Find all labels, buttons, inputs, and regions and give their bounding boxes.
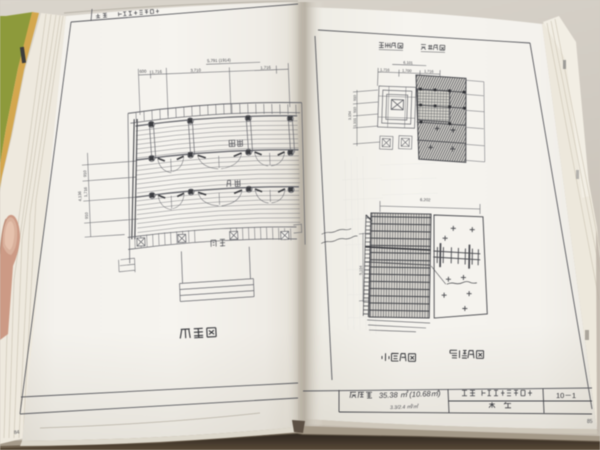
svg-text:1,716: 1,716 xyxy=(424,70,434,74)
svg-text:910: 910 xyxy=(84,211,89,219)
svg-text:910: 910 xyxy=(82,170,87,178)
svg-text:1,716: 1,716 xyxy=(83,186,88,197)
svg-text:3.3/2.4 ㎡/㎡: 3.3/2.4 ㎡/㎡ xyxy=(390,403,419,411)
svg-text:910: 910 xyxy=(353,107,357,113)
svg-text:910: 910 xyxy=(353,95,357,101)
svg-text:1,700: 1,700 xyxy=(402,69,412,73)
svg-text:1,716: 1,716 xyxy=(151,69,162,74)
svg-text:1,716: 1,716 xyxy=(380,68,390,72)
svg-text:5,791 (1914): 5,791 (1914) xyxy=(207,57,232,63)
svg-text:600: 600 xyxy=(139,69,147,74)
svg-text:4,136: 4,136 xyxy=(77,190,82,201)
svg-text:1,716: 1,716 xyxy=(260,65,271,70)
svg-text:5,104: 5,104 xyxy=(359,265,363,275)
svg-text:10－1: 10－1 xyxy=(556,391,576,400)
svg-text:1,331: 1,331 xyxy=(353,118,357,127)
svg-text:3,154: 3,154 xyxy=(348,111,352,120)
svg-text:6,101: 6,101 xyxy=(403,61,413,65)
svg-text:84: 84 xyxy=(14,430,20,436)
svg-text:3,710: 3,710 xyxy=(190,67,201,72)
svg-text:85: 85 xyxy=(587,419,593,425)
svg-text:6,202: 6,202 xyxy=(420,197,431,202)
